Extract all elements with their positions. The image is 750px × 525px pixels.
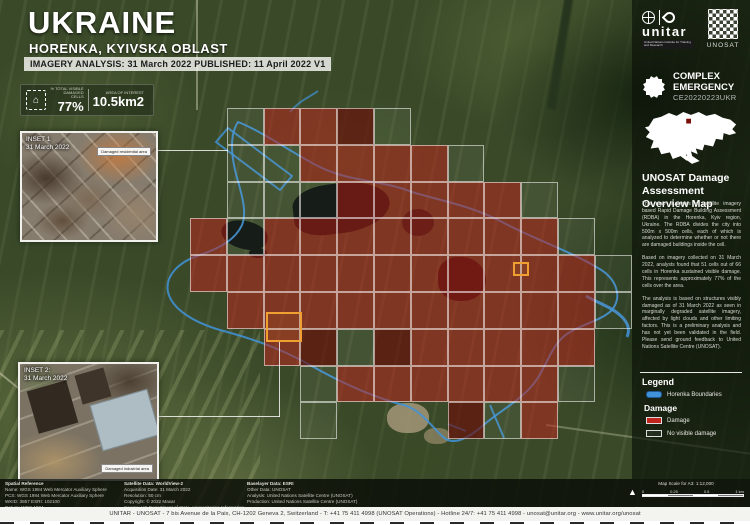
unosat-pixel-icon: [708, 9, 738, 39]
scale-bar: Map Scale for A3: 1:12,000 ▲ 00.250.51 k…: [628, 481, 744, 497]
no-damage-cell: [448, 145, 485, 182]
damage-cell: [484, 329, 521, 366]
logo-row: unitar United Nations Institute for Trai…: [642, 9, 742, 49]
inset2-callout: Damaged industrial area: [101, 464, 153, 473]
damage-cell: [521, 329, 558, 366]
damage-cell: [300, 329, 337, 366]
unitar-subtitle: United Nations Institute for Training an…: [642, 40, 694, 49]
damage-cell: [448, 218, 485, 255]
damage-cell: [227, 255, 264, 292]
unosat-wordmark: UNOSAT: [704, 42, 742, 49]
damage-cell: [448, 255, 485, 292]
map-sheet: UKRAINE HORENKA, KYIVSKA OBLAST IMAGERY …: [0, 0, 750, 525]
stats-box: ⌂ % TOTAL VISIBLE DAMAGED CELLS 77% AREA…: [20, 84, 154, 116]
page-subtitle: HORENKA, KYIVSKA OBLAST: [29, 41, 228, 56]
no-damage-cell: [595, 255, 632, 292]
no-damage-cell: [595, 292, 632, 329]
no-damage-swatch: [646, 430, 662, 437]
damage-cell: [558, 255, 595, 292]
damage-swatch: [646, 417, 662, 424]
damage-cell: [448, 182, 485, 219]
damage-cell: [264, 218, 301, 255]
no-damage-cell: [521, 182, 558, 219]
imagery-analysis-bar: IMAGERY ANALYSIS: 31 March 2022 PUBLISHE…: [24, 57, 331, 71]
analysis-credit-block: Baselayer Data: ESRIOther Data: UNOSATAn…: [247, 481, 452, 505]
list-line: Based on imagery collected on 31 March 2…: [642, 255, 741, 289]
damage-cell: [411, 182, 448, 219]
divider: [640, 372, 742, 373]
damage-cell: [448, 329, 485, 366]
page-title: UKRAINE: [28, 5, 176, 41]
area-value: 10.5km2: [93, 95, 144, 109]
damage-cell: [300, 145, 337, 182]
contact-line: UNITAR - UNOSAT - 7 bis Avenue de la Pai…: [109, 511, 640, 517]
damage-cell: [521, 366, 558, 403]
no-damage-cell: [227, 182, 264, 219]
legend-item-damage: Damage: [646, 417, 690, 424]
no-damage-cell: [227, 218, 264, 255]
damage-cell: [484, 366, 521, 403]
no-damage-cell: [300, 366, 337, 403]
damage-cell: [558, 329, 595, 366]
list-line: The analysis is based on structures visi…: [642, 296, 741, 351]
damage-cell: [337, 255, 374, 292]
inset2-leader-line: [158, 416, 280, 417]
legend-damage-heading: Damage: [644, 403, 677, 413]
damage-cell: [411, 292, 448, 329]
description-paragraphs: This map illustrates a satellite imagery…: [642, 201, 741, 357]
damaged-cells-stat: % TOTAL VISIBLE DAMAGED CELLS 77%: [46, 87, 88, 114]
damage-cell: [264, 255, 301, 292]
ukraine-locator-map: [643, 106, 739, 166]
damage-cell: [337, 108, 374, 145]
damage-cell: [411, 145, 448, 182]
footer: Spatial ReferenceName: WGS 1984 Web Merc…: [0, 479, 750, 507]
damaged-cells-label: % TOTAL VISIBLE DAMAGED CELLS: [50, 87, 84, 100]
boundary-swatch: [646, 391, 662, 398]
satellite-dish-icon: [662, 9, 678, 25]
damage-cell: [264, 108, 301, 145]
list-line: 0.5: [704, 489, 710, 494]
no-damage-cell: [300, 182, 337, 219]
damage-cell: [411, 366, 448, 403]
inset1-label: INSET 1 31 March 2022: [26, 136, 69, 153]
inset2-leader-line: [279, 342, 280, 417]
list-line: 1 km: [735, 489, 744, 494]
list-line: 0: [642, 489, 644, 494]
damage-cell: [374, 292, 411, 329]
damage-cell: [337, 218, 374, 255]
no-damage-cell: [558, 218, 595, 255]
damage-cell: [411, 255, 448, 292]
un-emblem-icon: [642, 11, 655, 24]
no-damage-cell: [374, 108, 411, 145]
inset1-leader-line: [158, 150, 228, 151]
damage-cell: [448, 292, 485, 329]
inset2: INSET 2: 31 March 2022 Damaged industria…: [18, 362, 159, 481]
damage-cell: [558, 292, 595, 329]
damage-cell: [190, 218, 227, 255]
damage-cell: [484, 292, 521, 329]
damage-cell: [374, 255, 411, 292]
damage-cell: [411, 218, 448, 255]
damage-cell: [374, 145, 411, 182]
emergency-code: CE20220223UKR: [673, 94, 737, 103]
unitar-wordmark: unitar: [642, 25, 694, 40]
no-damage-cell: [300, 402, 337, 439]
damage-cell: [300, 218, 337, 255]
damage-cell: [411, 329, 448, 366]
damage-cell: [448, 402, 485, 439]
damage-cell: [448, 366, 485, 403]
damage-cell: [337, 145, 374, 182]
no-damage-cell: [264, 182, 301, 219]
no-damage-cell: [337, 329, 374, 366]
legend-heading: Legend: [642, 377, 674, 387]
inset1: INSET 1 31 March 2022 Damaged residentia…: [20, 131, 158, 242]
damage-cell: [374, 329, 411, 366]
damage-cell: [374, 366, 411, 403]
area-stat: AREA OF INTEREST 10.5km2: [89, 91, 148, 109]
damage-cell: [227, 292, 264, 329]
inset1-callout: Damaged residential area: [97, 147, 151, 156]
damage-cell: [521, 218, 558, 255]
divider: [659, 10, 660, 25]
inset2-label: INSET 2: 31 March 2022: [24, 367, 67, 384]
damage-cell: [190, 255, 227, 292]
damage-cell: [337, 292, 374, 329]
scale-segments: [642, 494, 744, 497]
inset2-source-marker: [266, 312, 302, 342]
inset1-source-marker: [513, 262, 529, 276]
damaged-cells-value: 77%: [50, 100, 84, 114]
damage-cell: [300, 108, 337, 145]
no-damage-cell: [558, 366, 595, 403]
list-line: 0.25: [670, 489, 678, 494]
contact-strip: UNITAR - UNOSAT - 7 bis Avenue de la Pai…: [0, 507, 750, 521]
list-line: Production: United Nations Satellite Cen…: [247, 499, 452, 505]
no-damage-cell: [227, 108, 264, 145]
starburst-icon: [642, 75, 666, 99]
north-arrow-icon: ▲: [628, 488, 637, 497]
legend-item-boundary: Horenka Boundaries: [646, 391, 722, 398]
complex-emergency-block: COMPLEX EMERGENCY CE20220223UKR: [642, 72, 737, 102]
damage-cell: [337, 182, 374, 219]
damage-cell: [521, 292, 558, 329]
damage-cell: [300, 292, 337, 329]
damage-cell: [374, 182, 411, 219]
no-damage-cell: [484, 402, 521, 439]
info-sidebar: unitar United Nations Institute for Trai…: [632, 0, 750, 479]
trim-marks: [0, 521, 750, 525]
damage-cell: [484, 218, 521, 255]
damaged-cell-icon: ⌂: [26, 90, 46, 110]
list-line: This map illustrates a satellite imagery…: [642, 201, 741, 249]
horenka-location-marker: [686, 119, 691, 124]
unitar-logo: unitar United Nations Institute for Trai…: [642, 9, 694, 49]
unosat-logo: UNOSAT: [704, 9, 742, 49]
damage-cell: [337, 366, 374, 403]
legend-item-no-damage: No visible damage: [646, 430, 716, 437]
no-damage-cell: [227, 145, 264, 182]
no-damage-cell: [264, 145, 301, 182]
damage-cell: [300, 255, 337, 292]
damage-cell: [521, 402, 558, 439]
damage-cell: [374, 218, 411, 255]
damage-cell: [484, 182, 521, 219]
scale-title: Map Scale for A3: 1:12,000: [628, 481, 744, 486]
